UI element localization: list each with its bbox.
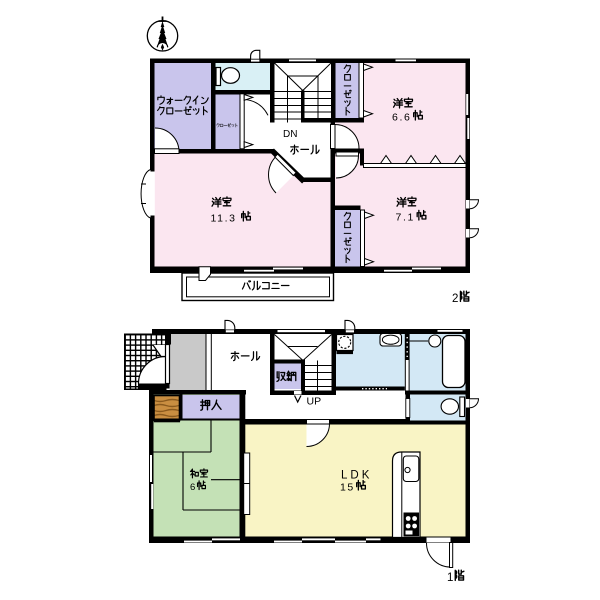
svg-text:11.3: 11.3 <box>211 213 237 225</box>
svg-text:UP: UP <box>307 396 322 408</box>
svg-text:7.1: 7.1 <box>396 212 415 224</box>
svg-text:1: 1 <box>447 572 453 584</box>
svg-text:6: 6 <box>190 482 195 493</box>
svg-text:DN: DN <box>283 129 297 140</box>
svg-text:6.6: 6.6 <box>392 112 411 124</box>
svg-text:LDK: LDK <box>341 470 372 482</box>
svg-text:15: 15 <box>340 482 355 494</box>
svg-text:2: 2 <box>452 293 458 305</box>
